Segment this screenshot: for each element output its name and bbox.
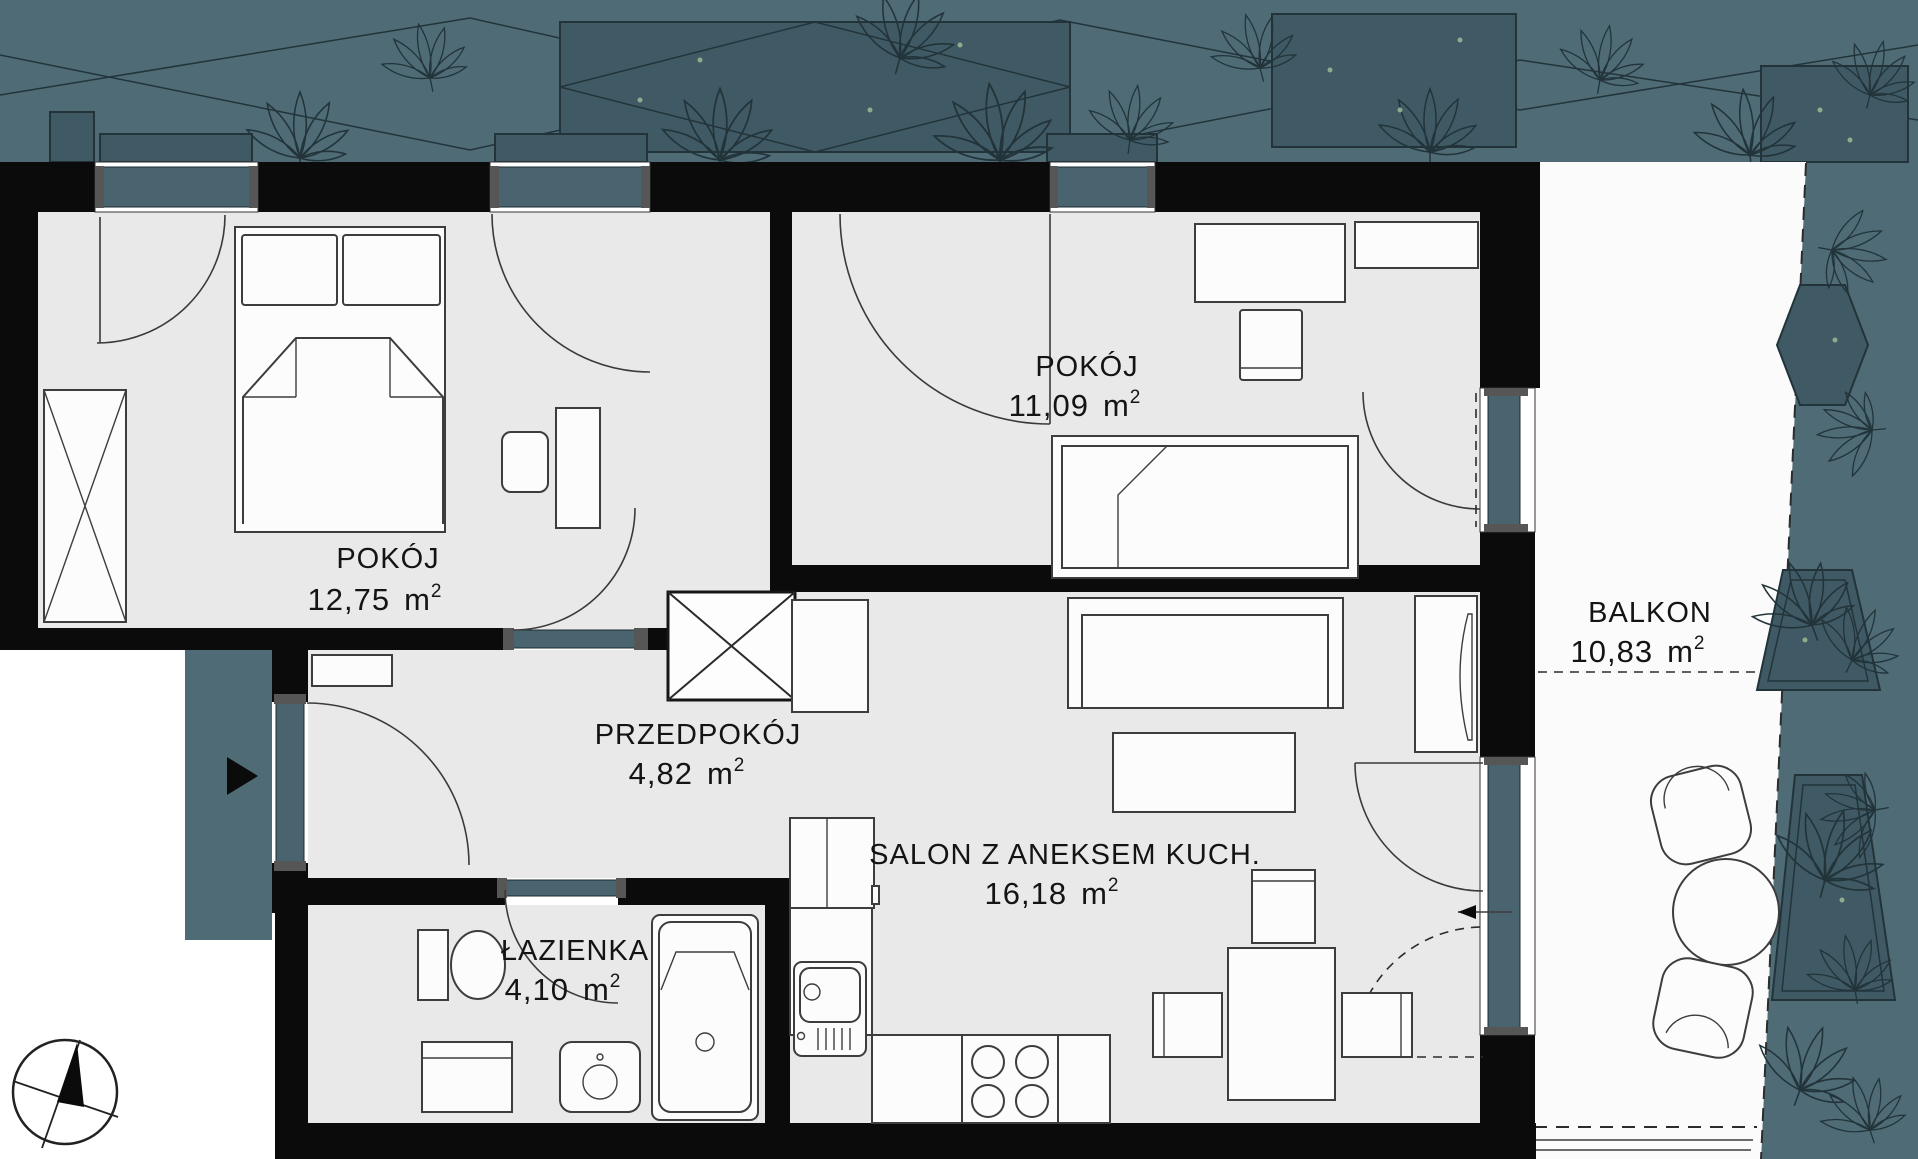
fridge xyxy=(790,818,879,908)
svg-text:POKÓJ: POKÓJ xyxy=(336,542,439,575)
planter-box xyxy=(50,112,94,162)
kitchen-sink xyxy=(794,962,866,1056)
dining-table xyxy=(1228,948,1335,1100)
planter-box xyxy=(1761,66,1908,162)
svg-text:POKÓJ: POKÓJ xyxy=(1035,350,1138,383)
sofa xyxy=(1068,598,1343,708)
planter-box-center xyxy=(560,22,1070,152)
svg-text:ŁAZIENKA: ŁAZIENKA xyxy=(501,935,649,967)
svg-text:4,82m2: 4,82m2 xyxy=(629,755,746,791)
bathtub xyxy=(652,915,758,1120)
cabinet xyxy=(792,600,868,712)
balcony-table xyxy=(1673,859,1779,965)
window-box xyxy=(495,134,647,162)
svg-text:PRZEDPOKÓJ: PRZEDPOKÓJ xyxy=(595,718,802,751)
washbasin xyxy=(560,1042,640,1112)
window-box xyxy=(100,134,252,162)
toilet xyxy=(418,930,505,1000)
double-bed xyxy=(235,227,445,532)
svg-text:16,18m2: 16,18m2 xyxy=(985,875,1120,911)
svg-text:10,83m2: 10,83m2 xyxy=(1571,633,1706,669)
coffee-table xyxy=(1113,733,1295,812)
shelf-pokoj2 xyxy=(1355,222,1478,268)
single-bed xyxy=(1052,436,1358,578)
balcony-chair xyxy=(1648,953,1757,1062)
hall-cabinet xyxy=(312,655,392,686)
floor-plan-drawing: POKÓJ 12,75m2 POKÓJ 11,09m2 PRZEDPOKÓJ 4… xyxy=(0,0,1918,1159)
tv-cabinet xyxy=(1415,596,1477,752)
svg-text:12,75m2: 12,75m2 xyxy=(308,581,443,617)
svg-text:SALON Z ANEKSEM KUCH.: SALON Z ANEKSEM KUCH. xyxy=(869,839,1261,871)
compass-icon xyxy=(13,1040,118,1148)
svg-text:BALKON: BALKON xyxy=(1588,597,1712,629)
floor-plan: POKÓJ 12,75m2 POKÓJ 11,09m2 PRZEDPOKÓJ 4… xyxy=(0,0,1918,1159)
svg-text:4,10m2: 4,10m2 xyxy=(505,971,622,1007)
ventilation-shaft xyxy=(668,592,795,700)
washing-machine xyxy=(422,1042,512,1112)
window-box xyxy=(1047,134,1157,162)
stove xyxy=(962,1035,1058,1123)
wardrobe xyxy=(44,390,126,622)
svg-text:11,09m2: 11,09m2 xyxy=(1009,387,1142,423)
